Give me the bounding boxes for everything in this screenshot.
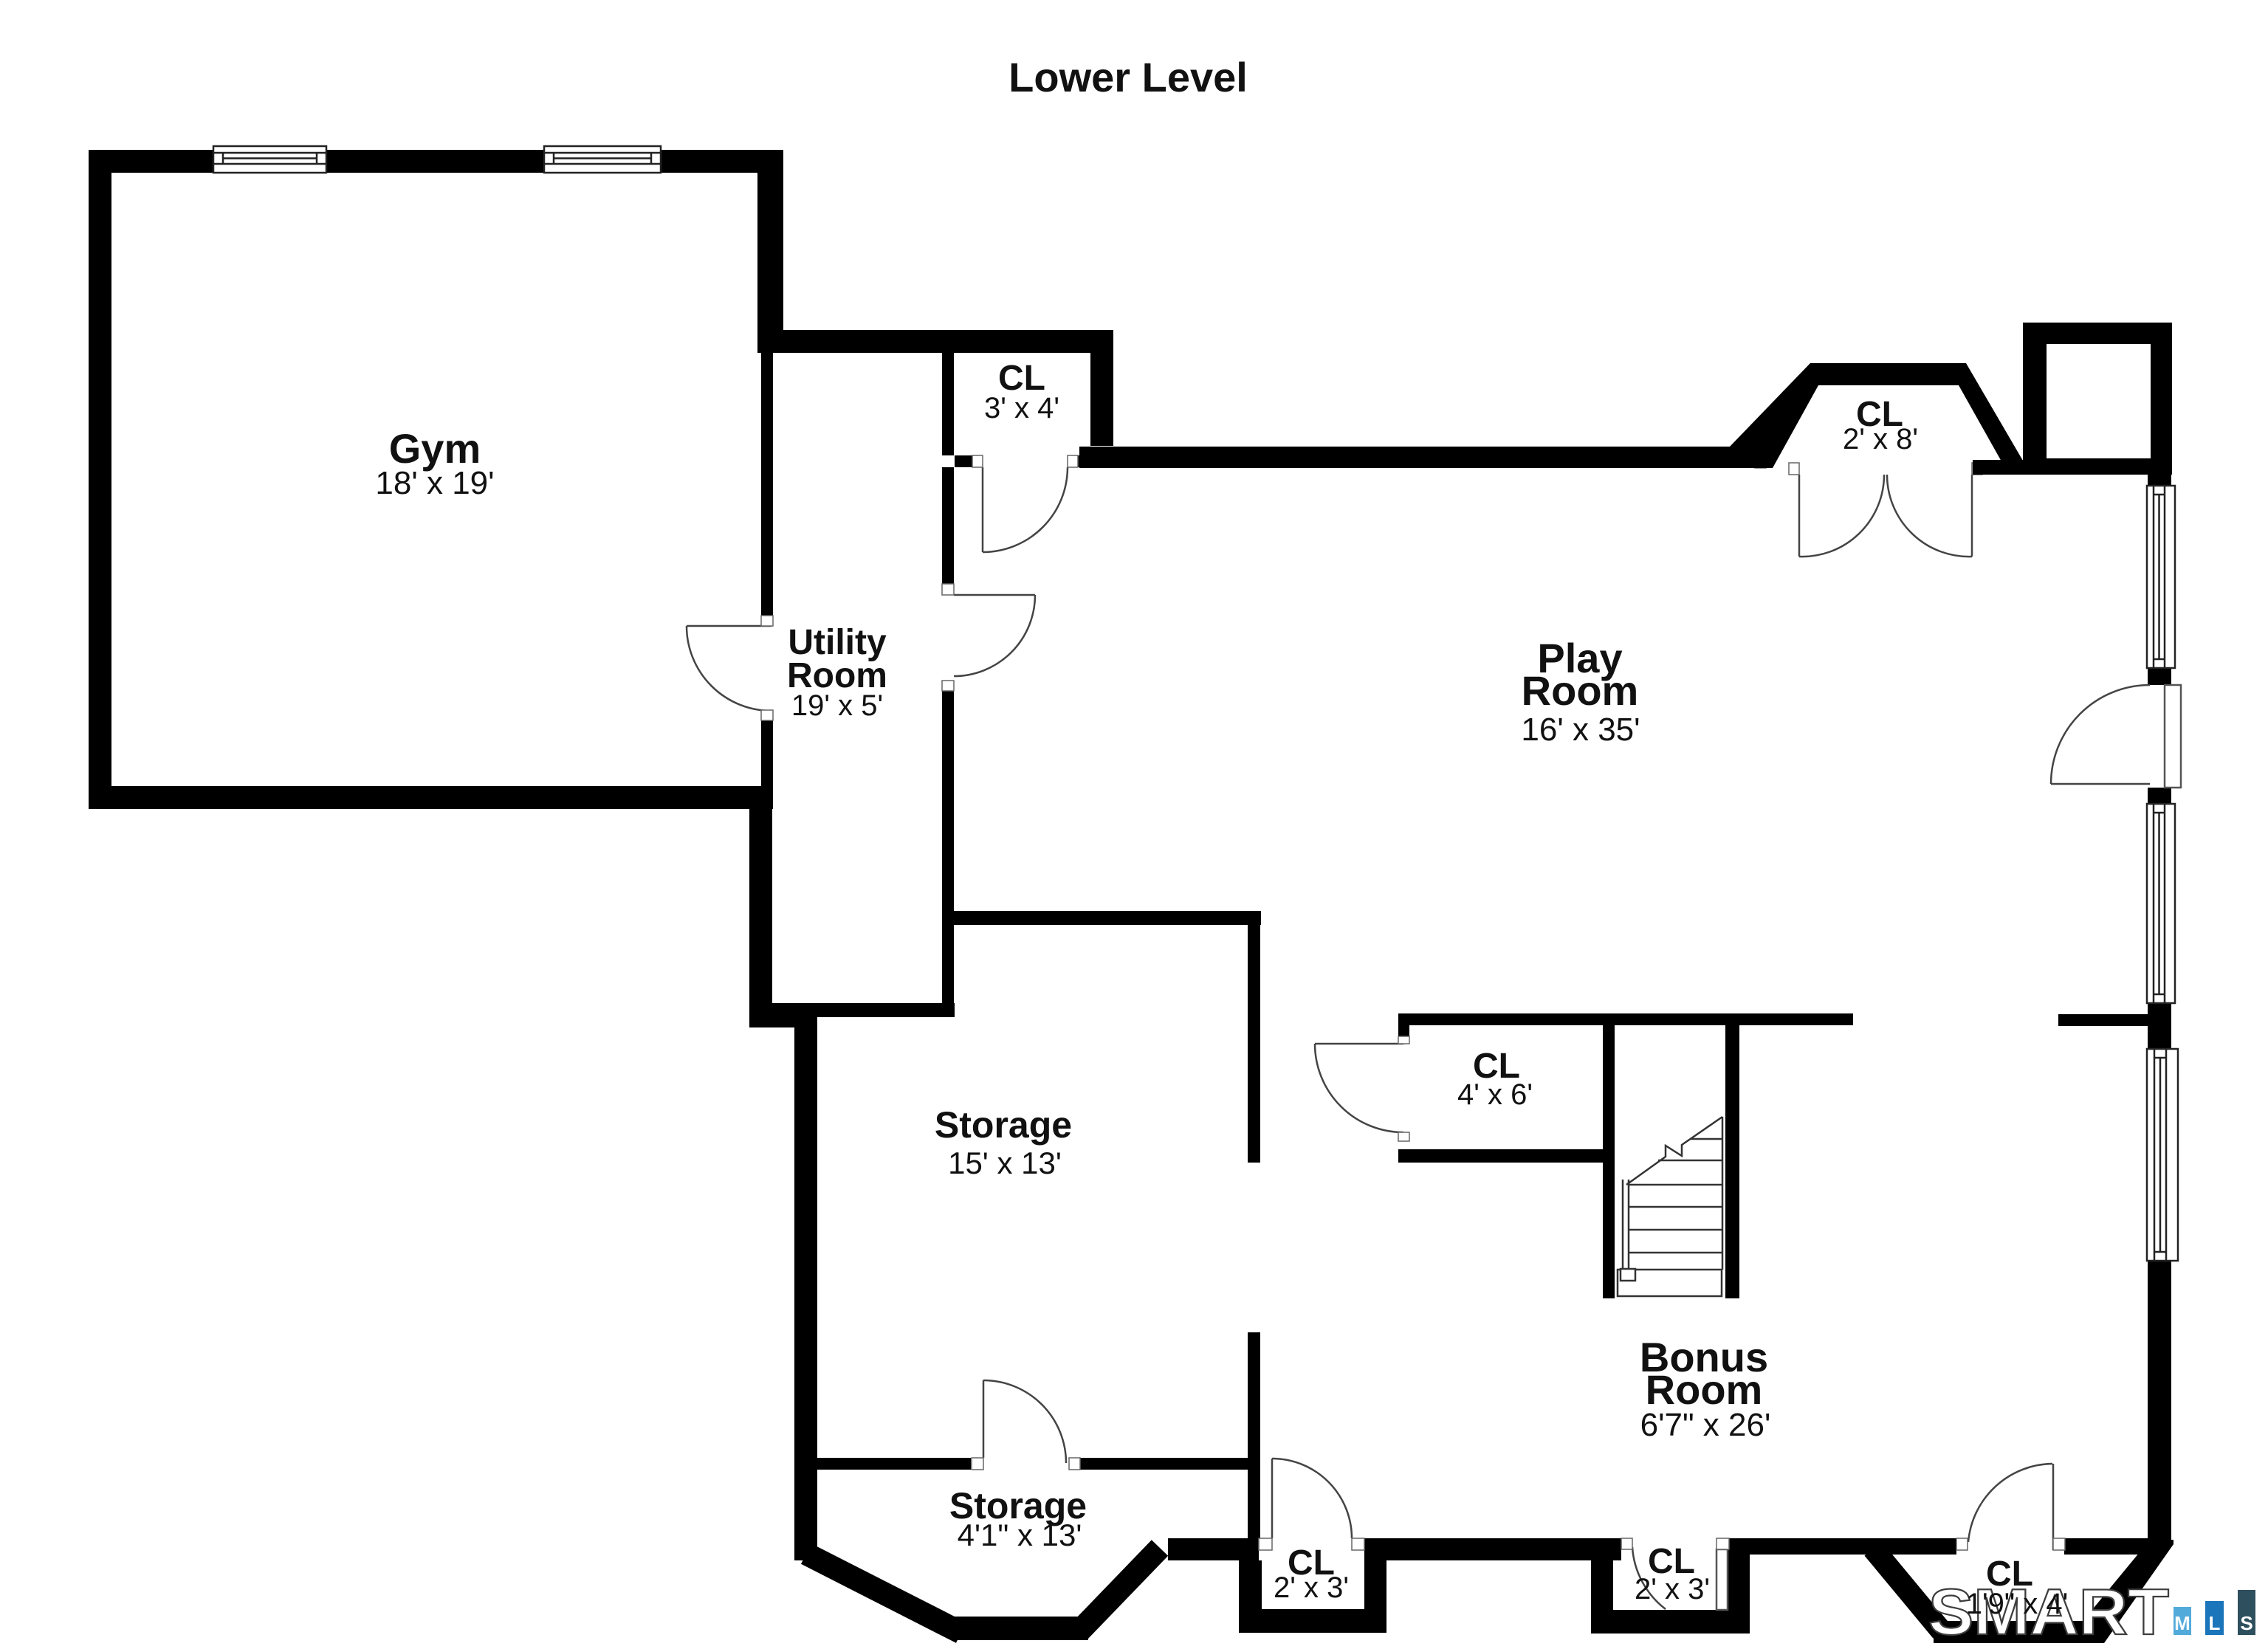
svg-text:18' x 19': 18' x 19'	[375, 465, 494, 501]
svg-text:6'7" x 26': 6'7" x 26'	[1640, 1407, 1771, 1443]
svg-text:S: S	[2240, 1612, 2252, 1634]
svg-text:Lower Level: Lower Level	[1008, 54, 1248, 100]
svg-text:19' x 5': 19' x 5'	[791, 689, 883, 722]
svg-text:2' x 8': 2' x 8'	[1843, 423, 1918, 455]
svg-text:Room: Room	[1522, 667, 1639, 714]
svg-text:2' x 3': 2' x 3'	[1635, 1573, 1710, 1605]
svg-text:Room: Room	[1646, 1366, 1763, 1413]
svg-text:15' x 13': 15' x 13'	[948, 1146, 1062, 1180]
svg-text:2' x 3': 2' x 3'	[1274, 1571, 1349, 1604]
svg-text:16' x 35': 16' x 35'	[1521, 712, 1640, 748]
svg-text:Storage: Storage	[935, 1104, 1072, 1146]
svg-text:3' x 4': 3' x 4'	[984, 392, 1059, 424]
svg-text:1'9" x 4': 1'9" x 4'	[1966, 1588, 2068, 1620]
svg-text:4'1" x 13': 4'1" x 13'	[958, 1518, 1082, 1552]
svg-text:4' x 6': 4' x 6'	[1457, 1078, 1533, 1111]
svg-text:L: L	[2209, 1612, 2221, 1634]
svg-text:M: M	[2174, 1612, 2190, 1634]
